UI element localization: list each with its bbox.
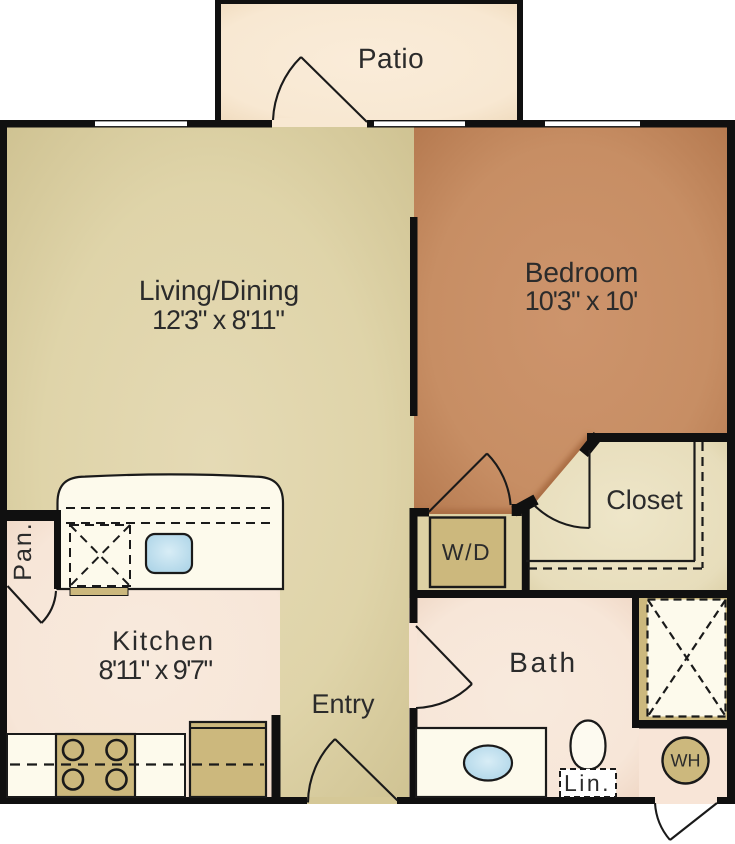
svg-text:Bath: Bath [509, 647, 578, 678]
svg-text:W/D: W/D [442, 539, 491, 565]
svg-text:Lin.: Lin. [564, 770, 611, 796]
svg-text:Bedroom: Bedroom [525, 257, 639, 288]
svg-text:Closet: Closet [606, 485, 683, 515]
svg-text:Kitchen: Kitchen [112, 626, 215, 656]
svg-text:Patio: Patio [358, 43, 424, 74]
svg-text:Living/Dining: Living/Dining [139, 275, 299, 306]
svg-text:Entry: Entry [311, 689, 375, 719]
svg-text:12'3" x 8'11": 12'3" x 8'11" [152, 305, 284, 335]
svg-text:Pan.: Pan. [9, 521, 37, 580]
svg-text:8'11" x 9'7": 8'11" x 9'7" [98, 655, 212, 685]
svg-text:10'3" x 10': 10'3" x 10' [525, 286, 637, 316]
svg-text:WH: WH [671, 751, 701, 771]
